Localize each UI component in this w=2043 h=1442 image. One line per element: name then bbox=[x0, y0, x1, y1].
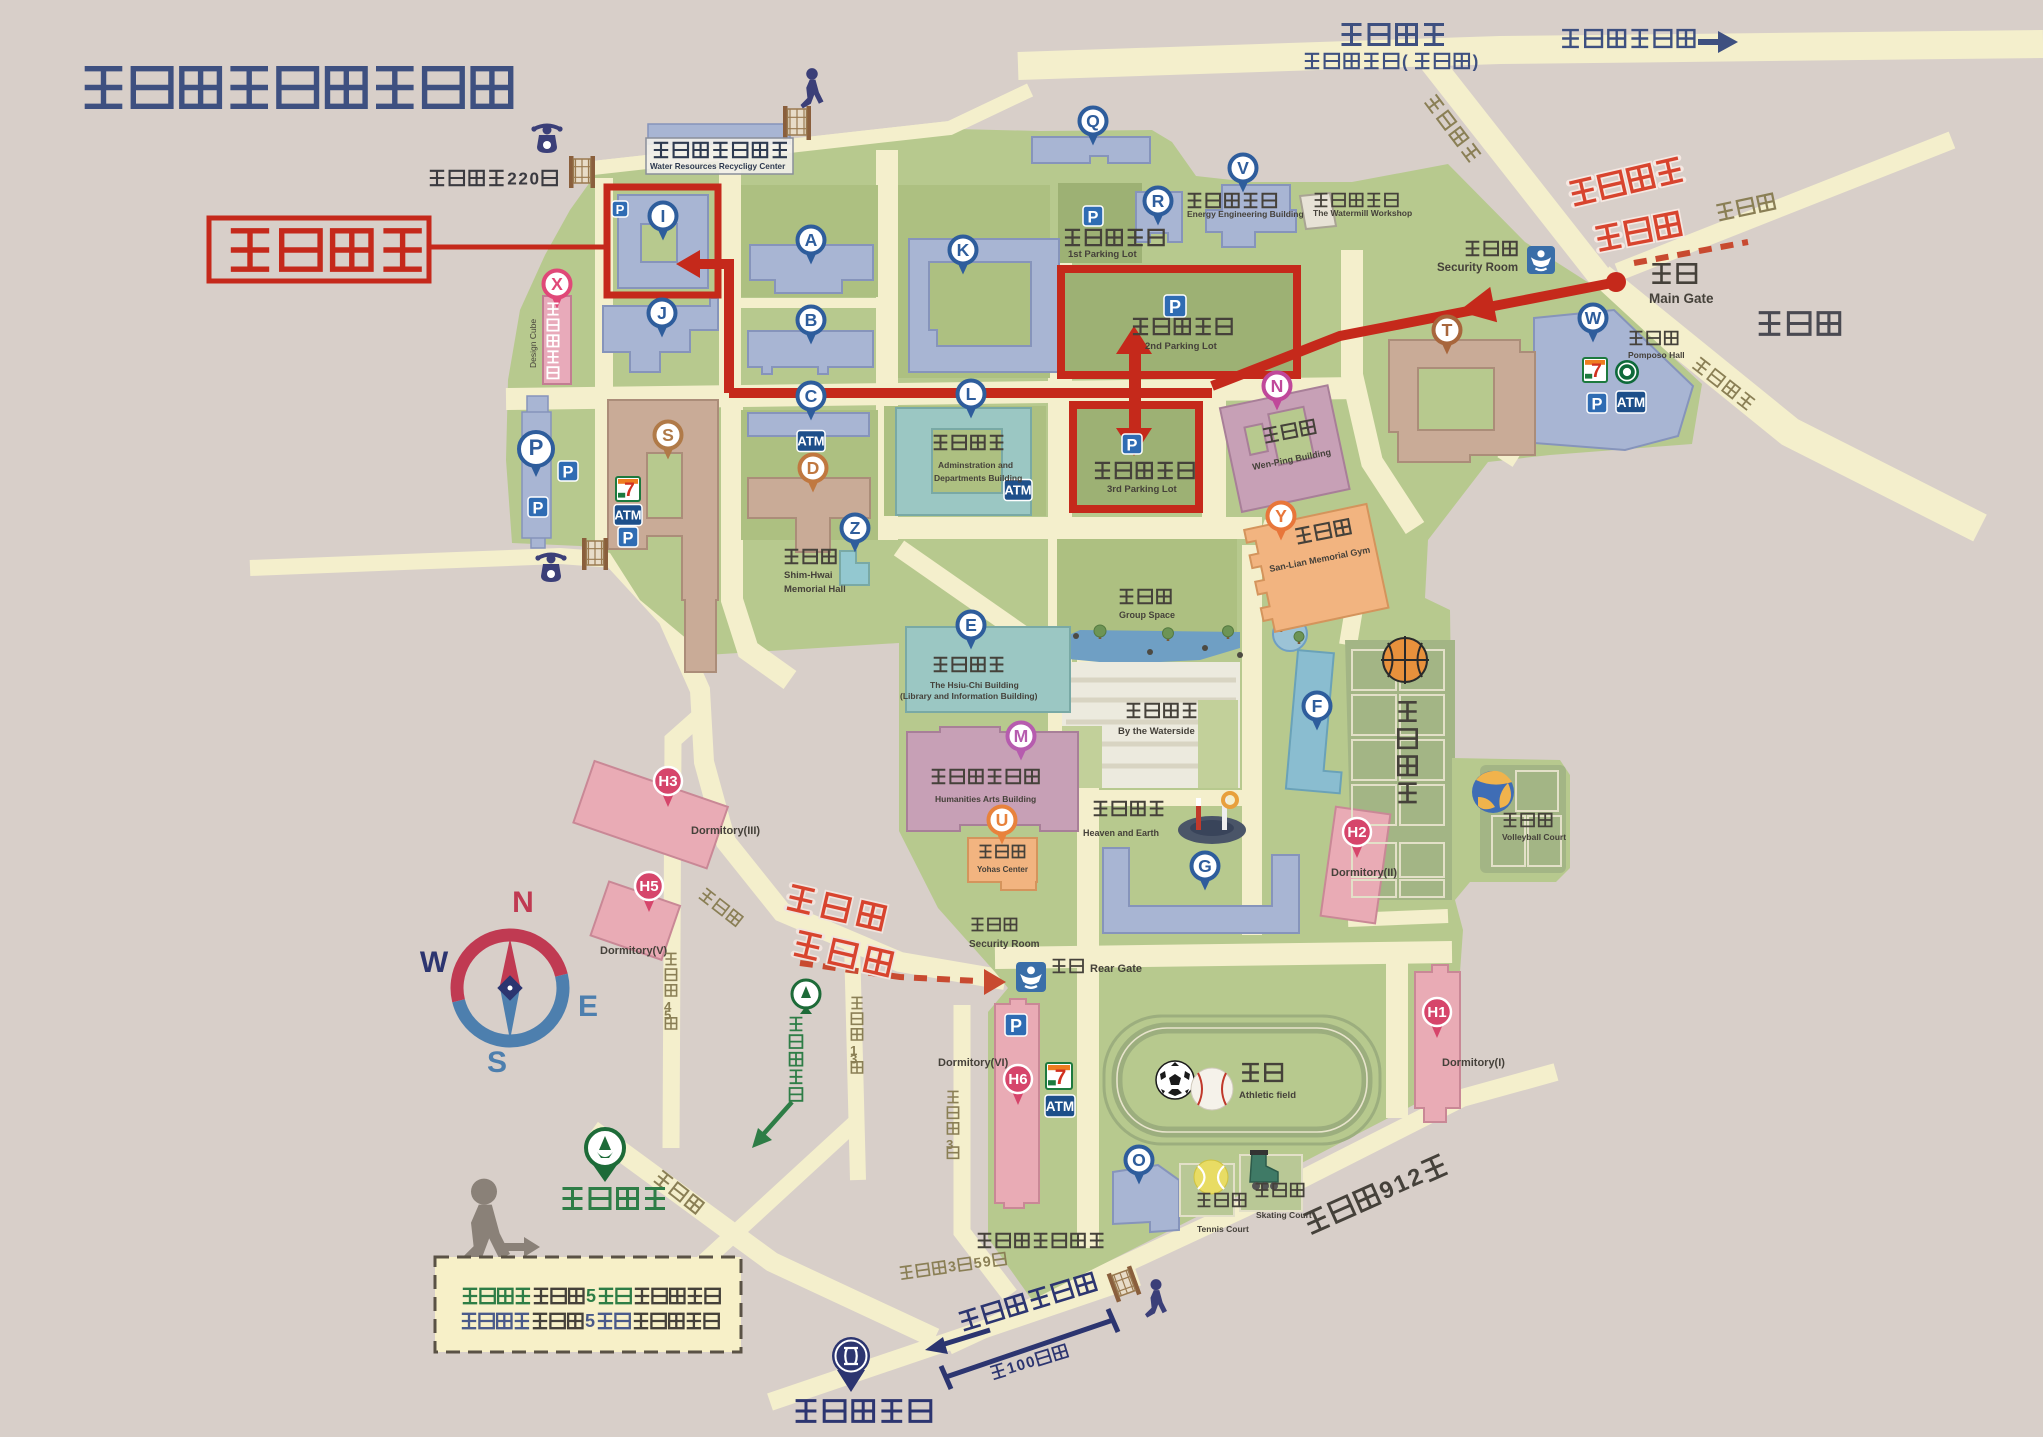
svg-text:F: F bbox=[1312, 696, 1323, 716]
svg-text:(Library and Information Build: (Library and Information Building) bbox=[900, 691, 1038, 701]
svg-text:P: P bbox=[529, 435, 544, 460]
svg-text:Security Room: Security Room bbox=[969, 939, 1040, 950]
svg-text:Dormitory(V): Dormitory(V) bbox=[600, 945, 668, 957]
svg-text:H1: H1 bbox=[1427, 1004, 1446, 1021]
svg-text:I: I bbox=[661, 206, 666, 226]
svg-text:H5: H5 bbox=[639, 878, 658, 895]
svg-text:Heaven and Earth: Heaven and Earth bbox=[1083, 828, 1159, 838]
svg-text:Volleyball Court: Volleyball Court bbox=[1502, 832, 1566, 842]
svg-text:): ) bbox=[1473, 52, 1479, 71]
svg-text:C: C bbox=[805, 386, 818, 406]
svg-text:ATM: ATM bbox=[1004, 483, 1031, 498]
svg-text:Humanities Arts Building: Humanities Arts Building bbox=[935, 794, 1036, 804]
svg-text:Yohas Center: Yohas Center bbox=[977, 865, 1028, 874]
svg-text:Q: Q bbox=[1086, 111, 1100, 131]
svg-text:7: 7 bbox=[624, 480, 635, 501]
svg-text:2nd Parking Lot: 2nd Parking Lot bbox=[1145, 341, 1218, 352]
svg-text:W: W bbox=[1585, 308, 1602, 328]
svg-text:M: M bbox=[1014, 726, 1029, 746]
svg-text:Memorial Hall: Memorial Hall bbox=[784, 584, 846, 595]
svg-text:O: O bbox=[1132, 1150, 1146, 1170]
svg-text:N: N bbox=[512, 886, 534, 919]
svg-text:Departments Building: Departments Building bbox=[934, 473, 1022, 483]
svg-text:By the Waterside: By the Waterside bbox=[1118, 726, 1195, 737]
svg-text:The Hsiu-Chi Building: The Hsiu-Chi Building bbox=[930, 680, 1019, 690]
svg-text:Y: Y bbox=[1275, 506, 1287, 526]
svg-text:5: 5 bbox=[586, 1286, 596, 1306]
svg-text:P: P bbox=[533, 499, 544, 517]
svg-text:U: U bbox=[996, 810, 1009, 830]
svg-text:L: L bbox=[966, 384, 977, 404]
svg-text:1st Parking Lot: 1st Parking Lot bbox=[1068, 249, 1137, 260]
svg-text:R: R bbox=[1152, 191, 1165, 211]
svg-text:P: P bbox=[1127, 436, 1138, 454]
svg-text:P: P bbox=[563, 463, 574, 481]
svg-text:P: P bbox=[1592, 395, 1603, 413]
svg-text:D: D bbox=[807, 458, 820, 478]
svg-text:Adminstration and: Adminstration and bbox=[938, 460, 1013, 470]
svg-text:Tennis Court: Tennis Court bbox=[1197, 1224, 1249, 1234]
svg-text:Design Cube: Design Cube bbox=[528, 319, 538, 368]
svg-text:Rear Gate: Rear Gate bbox=[1090, 963, 1142, 975]
svg-text:(: ( bbox=[1402, 52, 1408, 71]
svg-text:ATM: ATM bbox=[614, 508, 641, 523]
svg-text:N: N bbox=[1271, 376, 1284, 396]
svg-text:7: 7 bbox=[1591, 361, 1602, 382]
svg-text:P: P bbox=[623, 529, 634, 547]
svg-text:2: 2 bbox=[518, 169, 528, 188]
svg-text:E: E bbox=[965, 615, 977, 635]
svg-text:ATM: ATM bbox=[1617, 395, 1645, 410]
svg-text:G: G bbox=[1198, 856, 1212, 876]
svg-text:ATM: ATM bbox=[797, 434, 824, 449]
svg-text:Dormitory(VI): Dormitory(VI) bbox=[938, 1057, 1009, 1069]
svg-text:Dormitory(II): Dormitory(II) bbox=[1331, 867, 1397, 879]
svg-text:Water Resources Recycligy Cent: Water Resources Recycligy Center bbox=[650, 162, 786, 171]
svg-text:X: X bbox=[551, 274, 563, 294]
svg-text:S: S bbox=[662, 425, 674, 445]
svg-text:ATM: ATM bbox=[1046, 1099, 1074, 1114]
svg-text:A: A bbox=[805, 230, 818, 250]
svg-text:Athletic field: Athletic field bbox=[1239, 1090, 1296, 1101]
svg-text:2: 2 bbox=[507, 169, 517, 188]
svg-text:P: P bbox=[1169, 297, 1181, 317]
svg-text:Z: Z bbox=[850, 518, 861, 538]
svg-text:B: B bbox=[805, 310, 818, 330]
svg-text:5: 5 bbox=[585, 1311, 595, 1331]
svg-text:P: P bbox=[1010, 1016, 1022, 1036]
svg-text:Main Gate: Main Gate bbox=[1649, 291, 1714, 306]
svg-text:7: 7 bbox=[1055, 1066, 1067, 1089]
svg-text:Group Space: Group Space bbox=[1119, 610, 1175, 620]
svg-text:W: W bbox=[420, 946, 449, 979]
svg-text:H3: H3 bbox=[658, 773, 677, 790]
svg-text:H6: H6 bbox=[1008, 1071, 1027, 1088]
svg-text:S: S bbox=[487, 1046, 507, 1079]
svg-text:Pomposo Hall: Pomposo Hall bbox=[1628, 350, 1685, 360]
svg-text:Dormitory(III): Dormitory(III) bbox=[691, 825, 760, 837]
svg-text:P: P bbox=[616, 202, 625, 217]
svg-text:Security Room: Security Room bbox=[1437, 262, 1518, 274]
svg-text:K: K bbox=[957, 240, 970, 260]
svg-text:3rd Parking Lot: 3rd Parking Lot bbox=[1107, 484, 1178, 495]
svg-text:The Watermill Workshop: The Watermill Workshop bbox=[1313, 208, 1412, 218]
svg-text:E: E bbox=[578, 990, 598, 1023]
svg-text:V: V bbox=[1237, 158, 1249, 178]
svg-text:H2: H2 bbox=[1347, 824, 1366, 841]
svg-text:Dormitory(I): Dormitory(I) bbox=[1442, 1057, 1505, 1069]
svg-text:Energy Engineering Building: Energy Engineering Building bbox=[1187, 209, 1304, 219]
svg-text:J: J bbox=[657, 303, 667, 323]
svg-text:P: P bbox=[1088, 208, 1099, 226]
svg-text:0: 0 bbox=[530, 169, 540, 188]
svg-text:T: T bbox=[1442, 320, 1453, 340]
svg-text:Shim-Hwai: Shim-Hwai bbox=[784, 570, 833, 581]
